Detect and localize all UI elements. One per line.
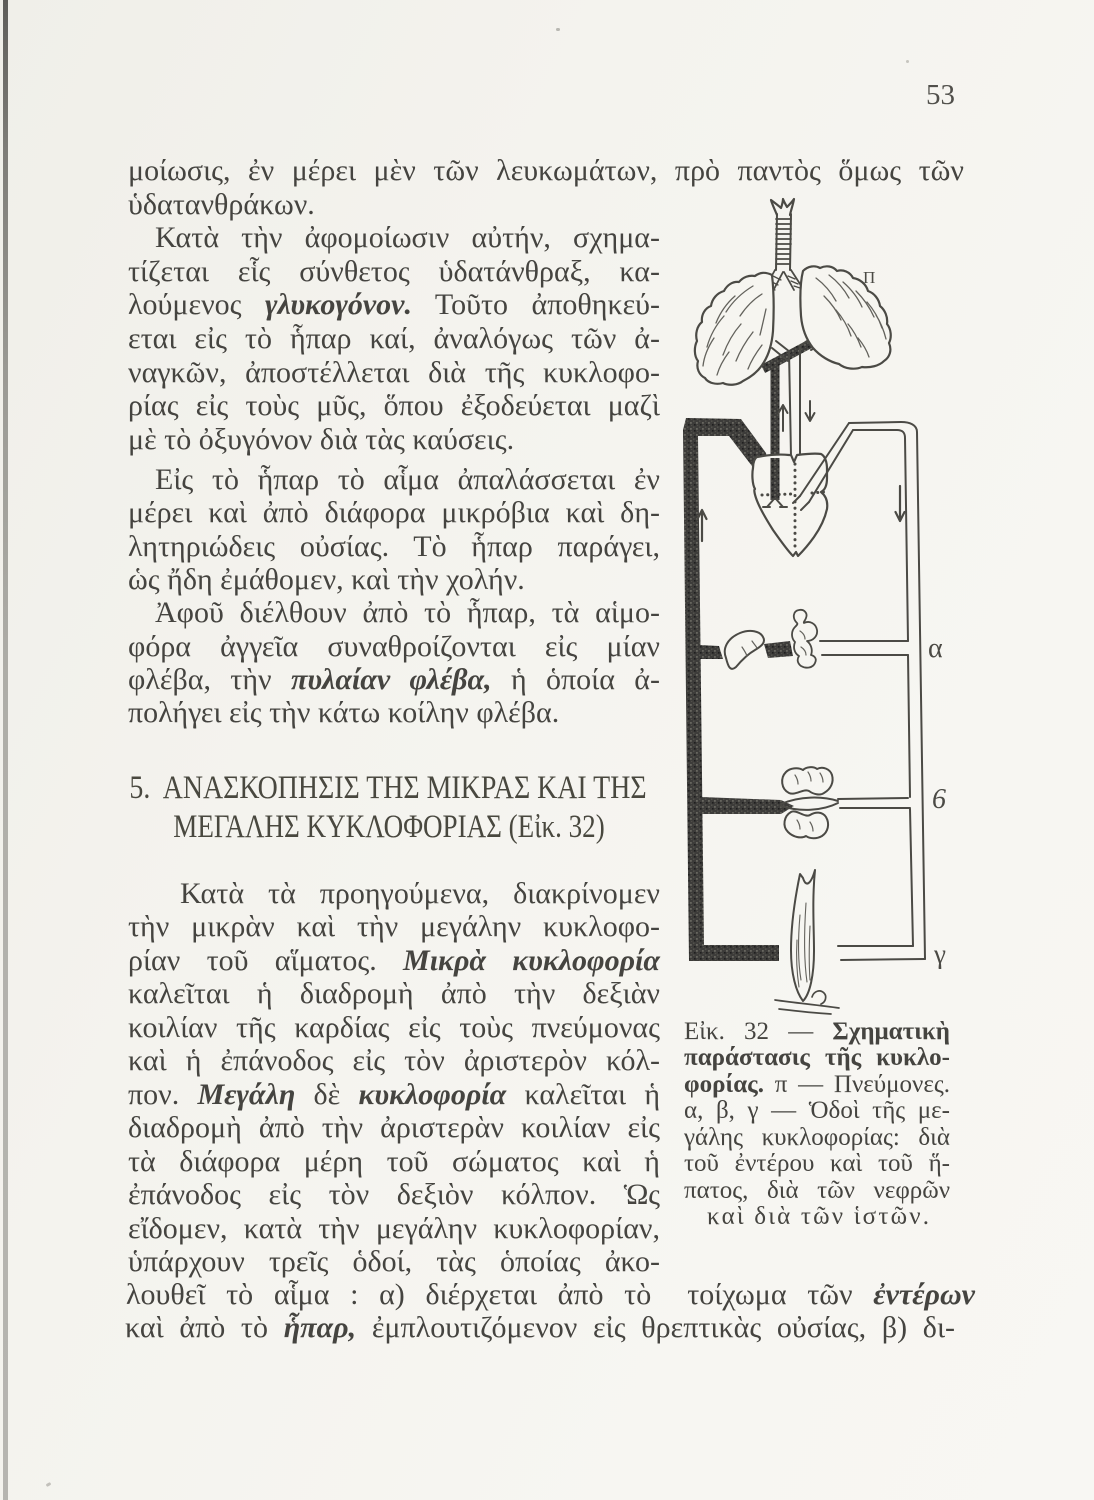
- svg-text:6: 6: [932, 784, 946, 815]
- svg-text:α: α: [928, 633, 943, 664]
- svg-text:Π: Π: [863, 268, 875, 287]
- svg-text:γ: γ: [933, 939, 946, 969]
